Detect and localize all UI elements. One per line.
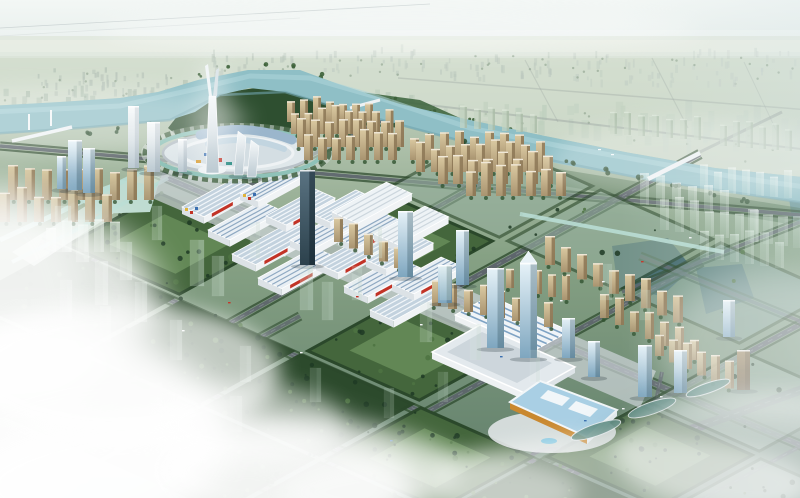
car: [602, 281, 605, 282]
cloud: [153, 382, 343, 466]
plaza-pavilion: [226, 162, 232, 165]
aerial-city-rendering: [0, 0, 800, 498]
car: [560, 300, 563, 301]
car: [300, 352, 303, 353]
car: [420, 324, 423, 325]
car: [500, 356, 503, 357]
car: [584, 420, 587, 421]
car: [356, 296, 359, 297]
scene: [0, 0, 800, 498]
car: [228, 302, 231, 303]
car: [283, 255, 286, 256]
car: [268, 247, 271, 248]
